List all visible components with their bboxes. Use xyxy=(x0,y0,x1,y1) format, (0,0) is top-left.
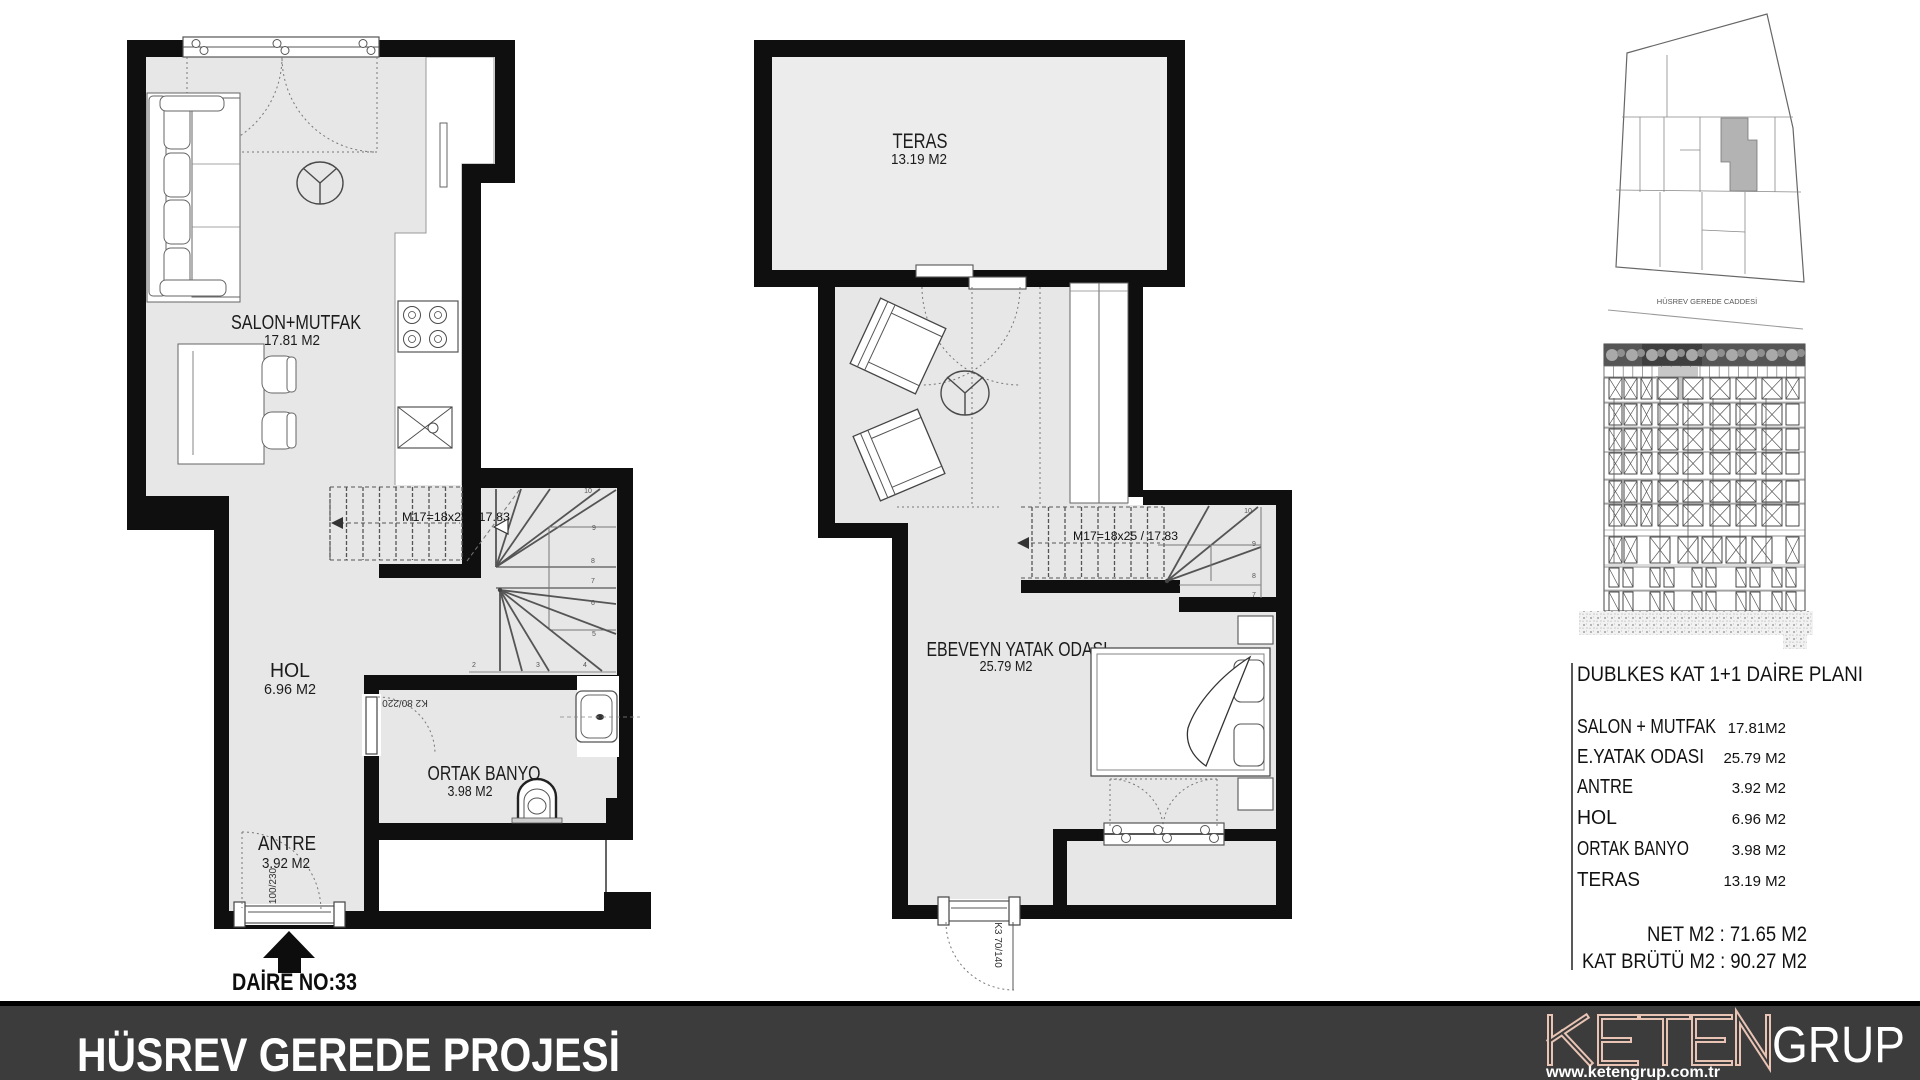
svg-text:13.19 M2: 13.19 M2 xyxy=(891,151,947,168)
svg-text:3.92 M2: 3.92 M2 xyxy=(1732,780,1786,797)
svg-text:13.19 M2: 13.19 M2 xyxy=(1723,873,1786,890)
svg-text:25.79 M2: 25.79 M2 xyxy=(1723,750,1786,767)
svg-text:www.ketengrup.com.tr: www.ketengrup.com.tr xyxy=(1545,1064,1720,1080)
svg-text:TERAS: TERAS xyxy=(1577,869,1640,891)
svg-text:3: 3 xyxy=(536,662,540,669)
svg-text:ANTRE: ANTRE xyxy=(258,833,316,855)
svg-text:K3 70/140: K3 70/140 xyxy=(992,922,1003,968)
svg-text:ORTAK BANYO: ORTAK BANYO xyxy=(1577,838,1689,860)
svg-text:HOL: HOL xyxy=(270,660,310,682)
svg-text:3.98 M2: 3.98 M2 xyxy=(448,783,493,800)
svg-text:TERAS: TERAS xyxy=(893,130,948,153)
svg-text:DAİRE NO:33: DAİRE NO:33 xyxy=(232,969,357,996)
svg-text:M17=18x25 / 17.83: M17=18x25 / 17.83 xyxy=(1073,531,1178,543)
svg-text:6.96 M2: 6.96 M2 xyxy=(264,681,316,698)
svg-text:ANTRE: ANTRE xyxy=(1577,776,1633,798)
svg-text:7: 7 xyxy=(1252,592,1256,599)
svg-text:10: 10 xyxy=(1244,508,1252,515)
svg-text:9: 9 xyxy=(592,525,596,532)
svg-text:HOL: HOL xyxy=(1577,807,1617,829)
svg-text:5: 5 xyxy=(592,631,596,638)
svg-text:ORTAK BANYO: ORTAK BANYO xyxy=(428,763,541,785)
svg-text:KAT BRÜTÜ M2 : 90.27 M2: KAT BRÜTÜ M2 : 90.27 M2 xyxy=(1582,949,1807,973)
svg-text:E.YATAK ODASI: E.YATAK ODASI xyxy=(1577,746,1704,768)
svg-text:3.92 M2: 3.92 M2 xyxy=(262,855,310,872)
svg-text:8: 8 xyxy=(591,558,595,565)
svg-text:6.96 M2: 6.96 M2 xyxy=(1732,811,1786,828)
svg-text:6: 6 xyxy=(591,600,595,607)
svg-text:17.81 M2: 17.81 M2 xyxy=(264,332,320,349)
svg-text:9: 9 xyxy=(1252,541,1256,548)
svg-text:25.79 M2: 25.79 M2 xyxy=(980,658,1033,675)
svg-text:SALON+MUTFAK: SALON+MUTFAK xyxy=(231,312,362,334)
svg-text:8: 8 xyxy=(1252,573,1256,580)
svg-text:17.81M2: 17.81M2 xyxy=(1728,720,1786,737)
svg-text:4: 4 xyxy=(583,662,587,669)
svg-text:3.98 M2: 3.98 M2 xyxy=(1732,842,1786,859)
svg-text:10: 10 xyxy=(584,488,592,495)
svg-text:100/230: 100/230 xyxy=(268,867,279,904)
svg-text:HÜSREV GEREDE PROJESİ: HÜSREV GEREDE PROJESİ xyxy=(77,1028,620,1080)
svg-text:HÜSREV GEREDE CADDESİ: HÜSREV GEREDE CADDESİ xyxy=(1657,297,1757,306)
svg-text:SALON + MUTFAK: SALON + MUTFAK xyxy=(1577,716,1717,738)
svg-text:DUBLKES KAT 1+1 DAİRE PLANI: DUBLKES KAT 1+1 DAİRE PLANI xyxy=(1577,662,1863,686)
svg-text:M17=18x25 / 17.83: M17=18x25 / 17.83 xyxy=(402,512,510,524)
svg-text:K2 80/220: K2 80/220 xyxy=(382,697,428,708)
svg-text:7: 7 xyxy=(591,578,595,585)
svg-text:2: 2 xyxy=(472,662,476,669)
svg-text:NET M2 : 71.65 M2: NET M2 : 71.65 M2 xyxy=(1647,922,1807,946)
svg-text:GRUP: GRUP xyxy=(1772,1016,1905,1073)
